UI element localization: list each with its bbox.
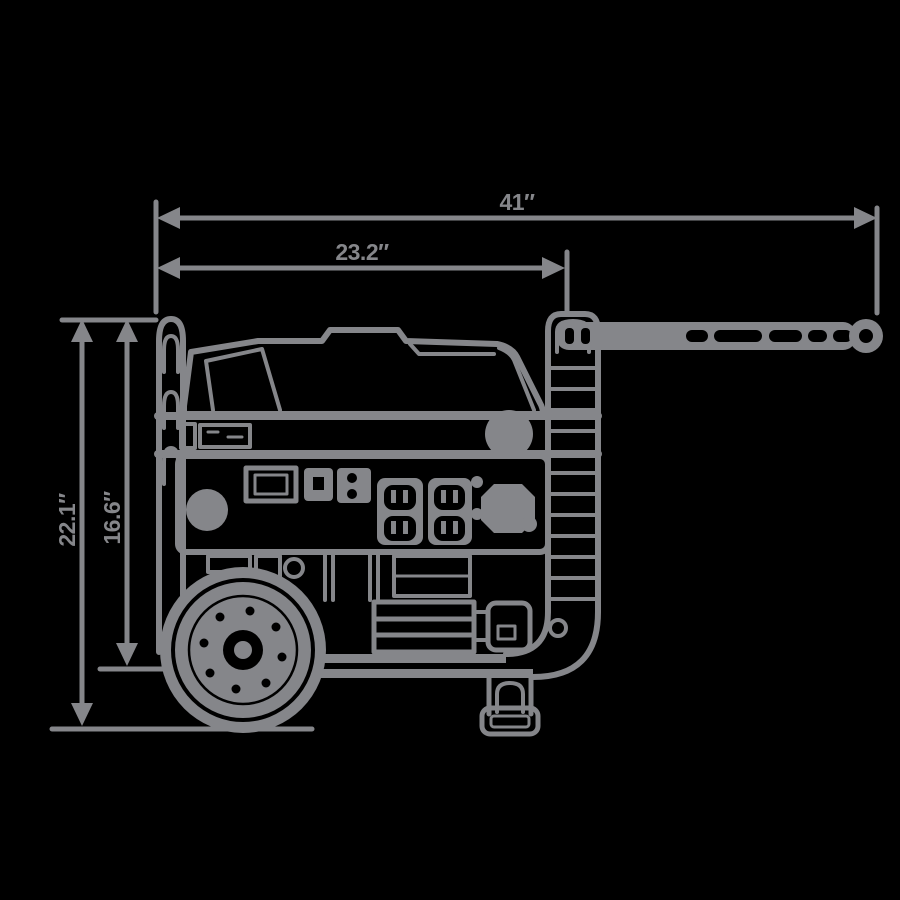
reset-button-top [347,473,357,483]
generator-dimension-diagram: 41″ 23.2″ 22.1″ 16.6″ [0,0,900,900]
digital-meter-screen [255,475,287,494]
foot-pad-insert [491,716,529,727]
lug-hole [246,607,255,616]
outlet-slot [403,490,408,503]
lug-hole [278,653,287,662]
bottom-rail-bottom [298,669,533,678]
duplex-outlet-1 [377,478,423,545]
selector-knob [186,489,228,531]
indicator-light-top [471,476,483,488]
support-foot [482,677,538,734]
handle-bar [556,319,883,353]
control-panel [178,456,548,552]
outlet-face-bottom [434,516,465,541]
arrowhead-right [542,257,565,279]
arrowhead-right [854,207,877,229]
lug-hole [206,669,215,678]
fuel-tank [184,330,543,414]
outlet-slot [441,490,446,503]
muffler-fins [377,619,471,635]
muffler [374,602,474,652]
bottom-frame [298,612,598,678]
outlet-face-top [434,485,465,510]
dim-label-body-height: 16.6″ [99,491,125,545]
outlet-face-top [384,485,416,510]
arrowhead-down [71,703,93,726]
axle-cap [234,641,252,659]
handle-joint-slot [565,328,574,344]
engine-tubes [325,553,378,600]
generator-drawing [158,314,883,734]
outlet-slot [441,521,446,534]
bottom-rail-top [298,654,506,663]
ground-terminal [521,516,537,532]
lug-hole [272,623,281,632]
outlet-face-bottom [384,516,416,541]
frame-hook [550,620,566,636]
dim-label-overall-width: 41″ [499,189,535,215]
dimension-overall-height: 22.1″ [54,319,93,726]
handle-post-outline [548,314,598,612]
outlet-slot [453,490,458,503]
lug-hole [200,639,209,648]
handle-slot [769,330,802,342]
handle-joint-slot [581,328,590,344]
outlet-slot [453,521,458,534]
engine-cap [285,559,303,577]
air-filter-knob [485,410,533,458]
arrowhead-down [116,643,138,666]
duplex-outlet-2 [428,478,472,545]
muffler-outlet [498,626,515,639]
lug-hole [216,613,225,622]
dimension-overall-width: 41″ [157,189,877,229]
fuel-tank-outline [184,330,543,414]
arrowhead-left [157,257,180,279]
handle-post-ribs [551,368,595,599]
dim-label-body-width: 23.2″ [335,239,389,265]
outlet-slot [391,490,396,503]
arrowhead-left [157,207,180,229]
outlet-slot [403,521,408,534]
fuel-tank-inner-left [206,349,280,410]
breaker-switch [313,477,324,490]
lug-hole [262,679,271,688]
dimension-body-height: 16.6″ [99,319,138,666]
diagram-canvas: 41″ 23.2″ 22.1″ 16.6″ [0,0,900,900]
wheel [160,567,326,733]
lug-hole [232,685,241,694]
handle-post [548,314,598,612]
handle-slot [686,330,708,342]
handle-slot [808,330,827,342]
reset-button-bottom [347,489,357,499]
outlet-slot [391,521,396,534]
handle-slot [714,330,762,342]
recoil-box-marks [208,432,242,437]
handle-grip-ring-hole [859,329,873,343]
dimension-body-width: 23.2″ [157,239,565,279]
dim-label-overall-height: 22.1″ [54,493,80,547]
